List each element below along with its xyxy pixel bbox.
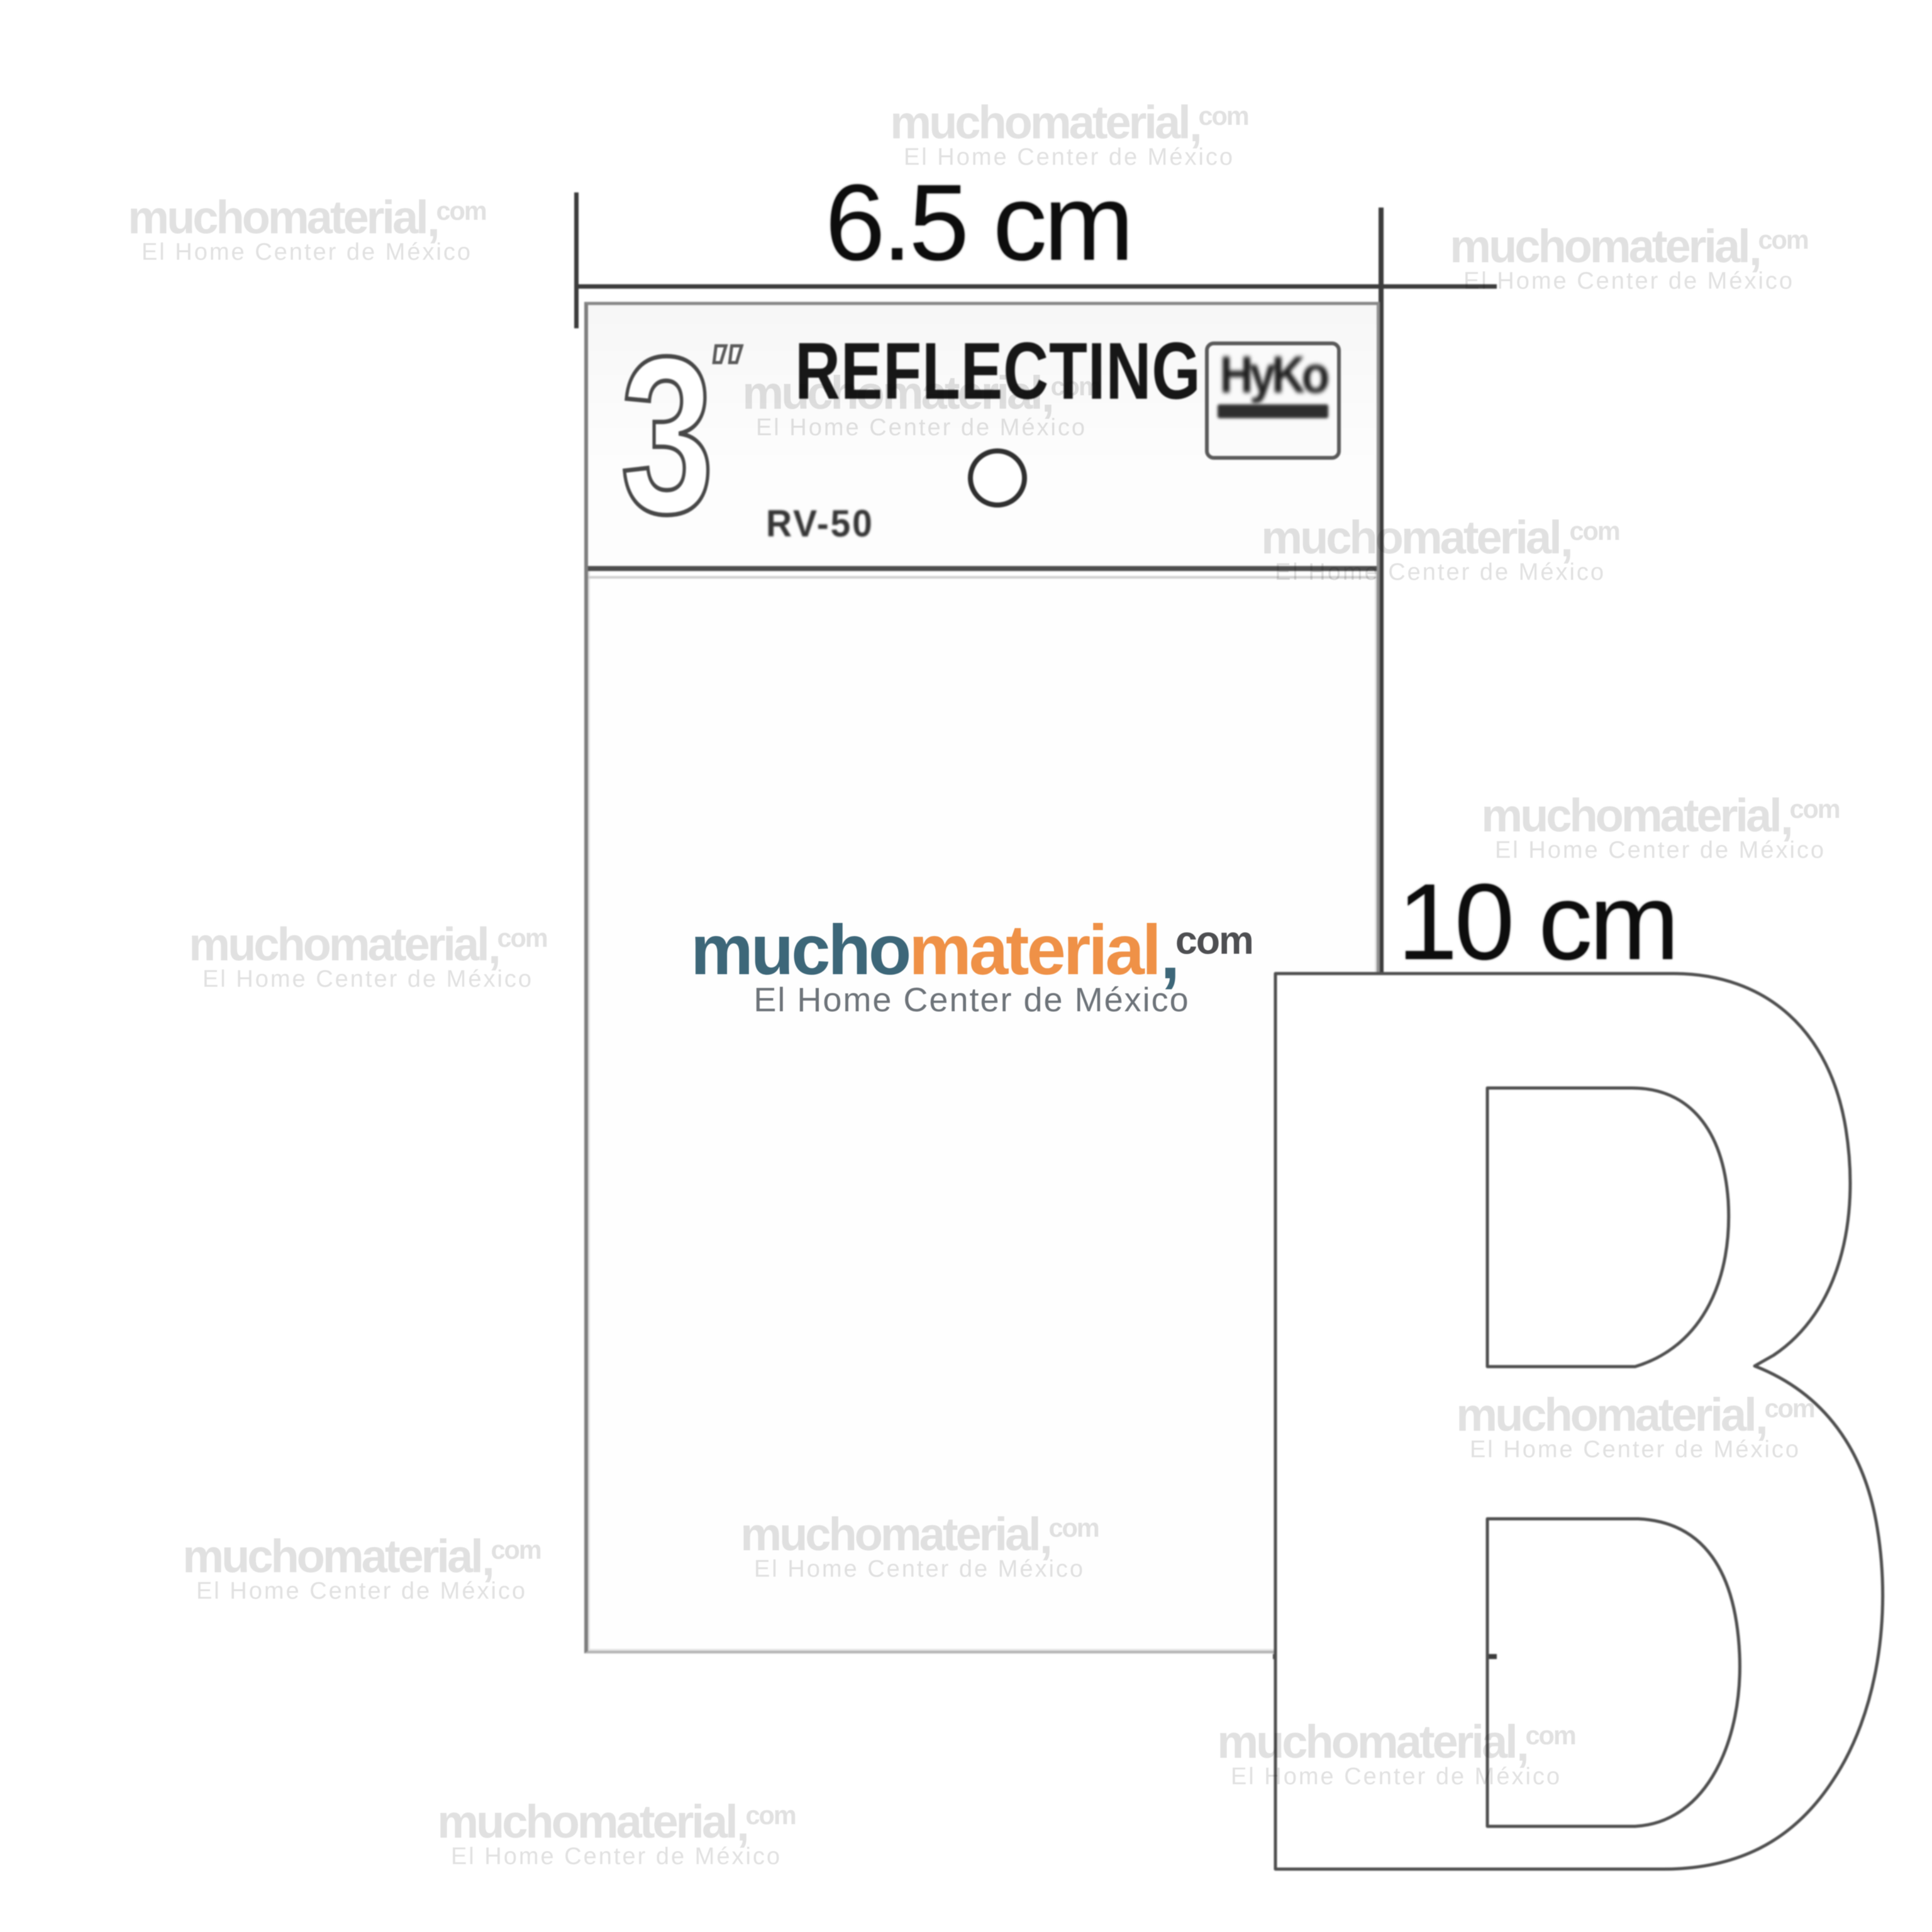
watermark-wordmark: muchomaterial,com: [1217, 1719, 1575, 1765]
height-dimension-label: 10 cm: [1397, 868, 1676, 976]
watermark: muchomaterial,com El Home Center de Méxi…: [1481, 792, 1839, 864]
watermark-comma: ,: [427, 197, 438, 243]
watermark-tld: com: [1051, 371, 1101, 401]
watermark: muchomaterial,com El Home Center de Méxi…: [182, 1533, 540, 1605]
watermark-comma: ,: [488, 924, 499, 970]
watermark-comma: ,: [1749, 226, 1760, 272]
header-separator-light: [588, 576, 1377, 579]
brand-logo-mark: HyKo: [1209, 349, 1337, 401]
width-dimension-line: [576, 284, 1497, 289]
watermark-comma: ,: [1755, 1394, 1766, 1441]
watermark-tld: com: [1175, 918, 1253, 962]
watermark: muchomaterial,com El Home Center de Méxi…: [189, 921, 547, 993]
watermark-wordmark: muchomaterial,com: [1450, 223, 1807, 270]
watermark-tld: com: [497, 923, 547, 952]
watermark-tld: com: [436, 196, 486, 225]
watermark-wordmark: muchomaterial,com: [182, 1533, 540, 1580]
watermark: muchomaterial,com El Home Center de Méxi…: [740, 1511, 1098, 1583]
watermark: muchomaterial,com El Home Center de Méxi…: [437, 1799, 795, 1870]
brand-logo: HyKo: [1205, 341, 1341, 460]
watermark-tld: com: [1049, 1513, 1099, 1542]
watermark-wordmark: muchomaterial,com: [1481, 792, 1839, 839]
watermark-wordmark: muchomaterial,com: [740, 1511, 1098, 1558]
watermark-comma: ,: [1160, 919, 1177, 990]
size-inch-mark: ″: [711, 332, 743, 406]
watermark: muchomaterial,com El Home Center de Méxi…: [128, 194, 486, 266]
brand-logo-band: [1218, 404, 1328, 418]
watermark-colored: muchomaterial,com El Home Center de Méxi…: [691, 915, 1253, 1019]
watermark-wordmark: muchomaterial,com: [1261, 514, 1619, 561]
watermark-comma: ,: [1041, 372, 1052, 419]
watermark: muchomaterial,com El Home Center de Méxi…: [1217, 1719, 1575, 1790]
watermark-comma: ,: [1560, 517, 1571, 563]
sku-code: RV-50: [766, 505, 874, 543]
watermark: muchomaterial,com El Home Center de Méxi…: [742, 370, 1100, 441]
size-number-digit: 3: [621, 310, 714, 560]
watermark-comma: ,: [736, 1801, 747, 1848]
watermark-tld: com: [746, 1800, 796, 1829]
watermark-wordmark: muchomaterial,com: [437, 1799, 795, 1845]
watermark-tld: com: [1526, 1720, 1575, 1750]
hang-hole: [968, 448, 1027, 508]
watermark-wordmark: muchomaterial,com: [189, 921, 547, 968]
watermark-tld: com: [491, 1535, 541, 1564]
width-dimension-tick-left: [574, 192, 579, 328]
watermark-wordmark: muchomaterial,com: [890, 99, 1248, 146]
watermark-comma: ,: [1189, 102, 1200, 148]
watermark-tld: com: [1758, 225, 1808, 254]
watermark: muchomaterial,com El Home Center de Méxi…: [890, 99, 1248, 171]
watermark-comma: ,: [1040, 1514, 1050, 1560]
watermark: muchomaterial,com El Home Center de Méxi…: [1261, 514, 1619, 586]
watermark-wordmark: muchomaterial,com: [742, 370, 1100, 416]
watermark: muchomaterial,com El Home Center de Méxi…: [1450, 223, 1807, 295]
width-dimension-label: 6.5 cm: [726, 169, 1230, 277]
watermark-wordmark: muchomaterial,com: [128, 194, 486, 241]
watermark-comma: ,: [1780, 795, 1791, 841]
watermark-wordmark: muchomaterial,com: [691, 915, 1253, 985]
watermark-tld: com: [1570, 516, 1619, 545]
watermark-tld: com: [1199, 101, 1248, 130]
watermark-comma: ,: [482, 1536, 492, 1582]
watermark-comma: ,: [1516, 1721, 1527, 1768]
watermark: muchomaterial,com El Home Center de Méxi…: [1456, 1392, 1814, 1463]
watermark-tld: com: [1790, 794, 1840, 823]
watermark-wordmark: muchomaterial,com: [1456, 1392, 1814, 1438]
watermark-tld: com: [1765, 1393, 1814, 1423]
page: { "dimensions": { "width_label": "6.5 cm…: [0, 0, 1932, 1932]
